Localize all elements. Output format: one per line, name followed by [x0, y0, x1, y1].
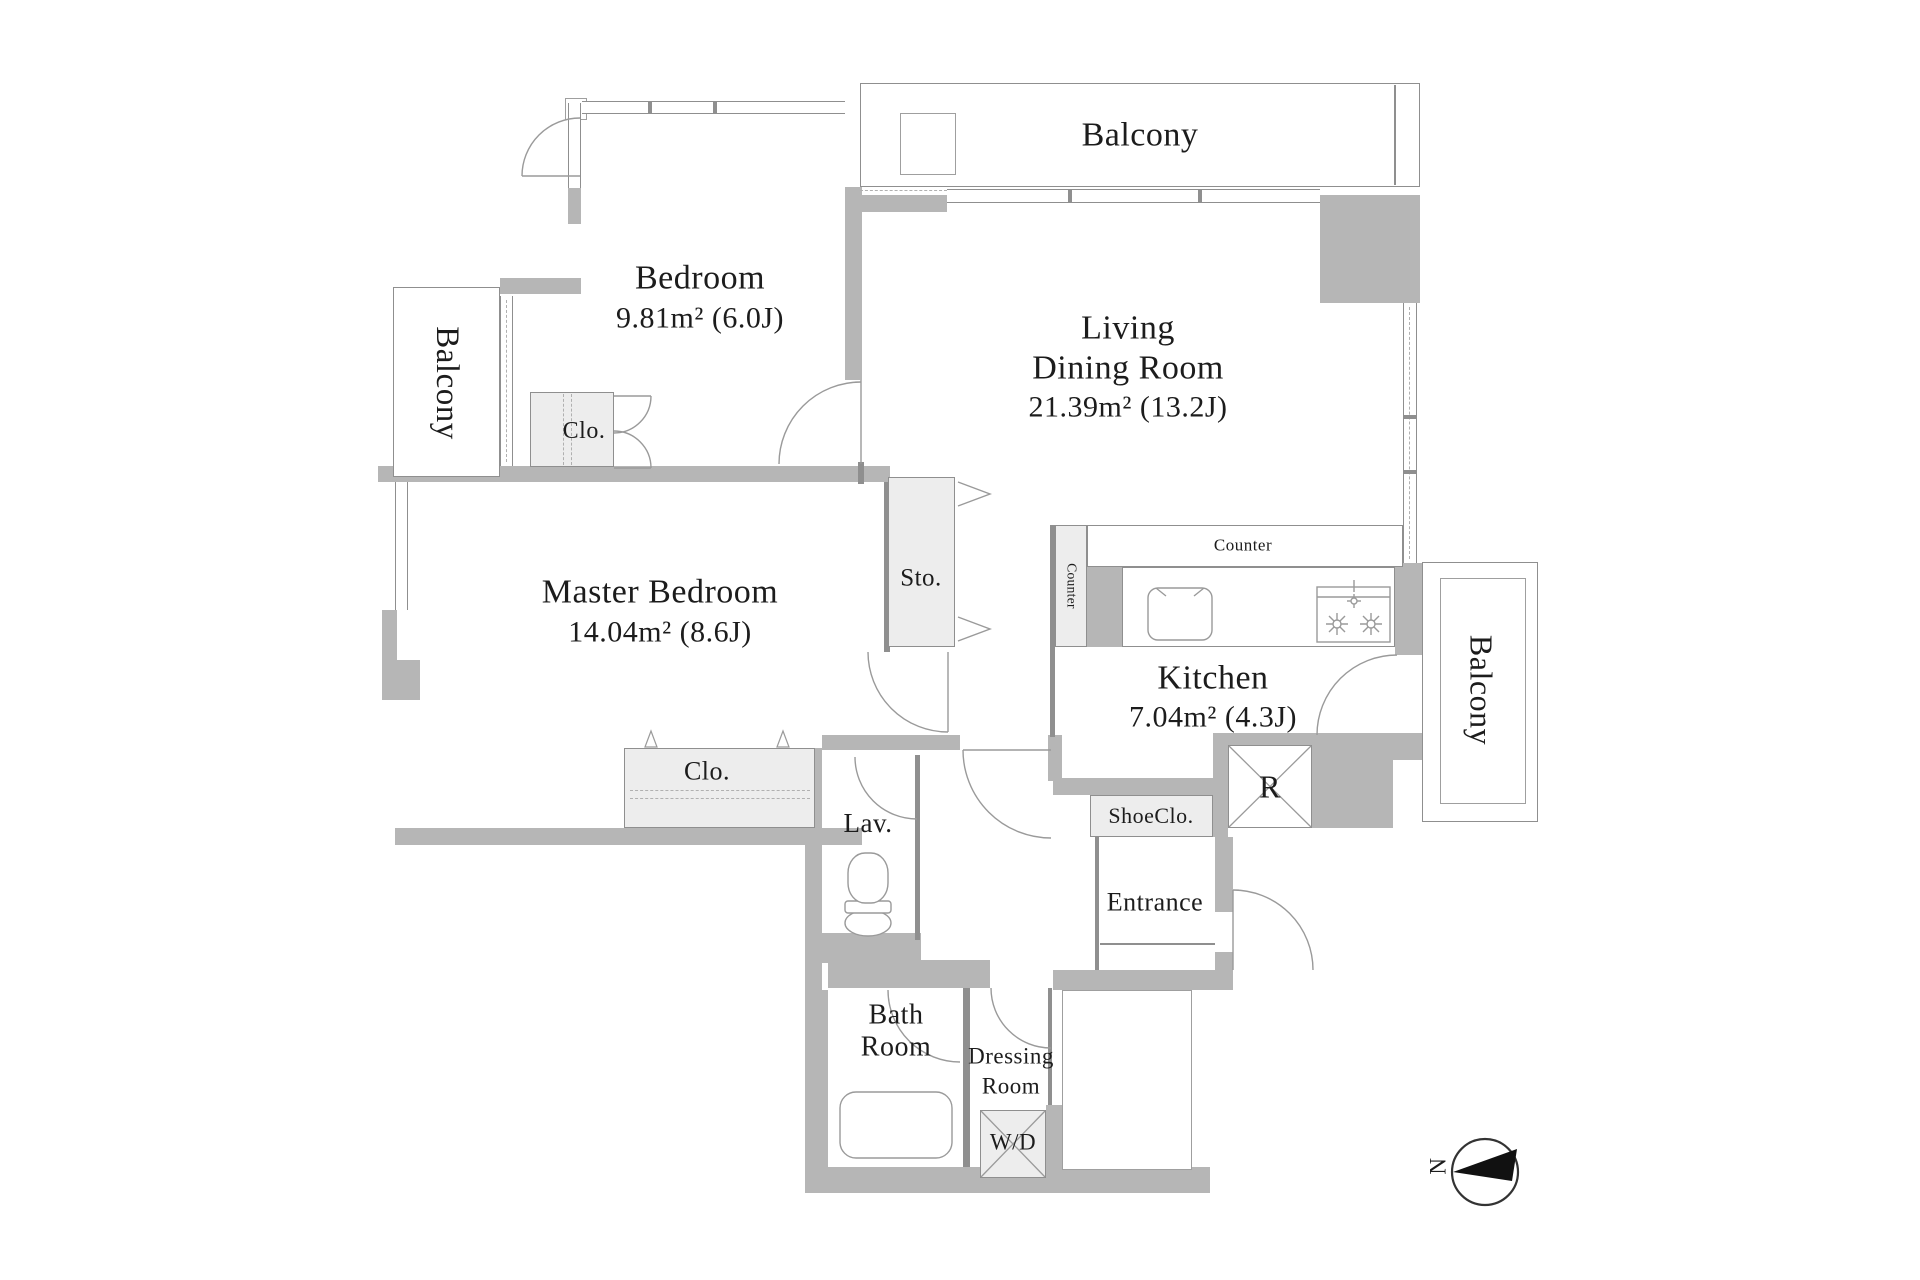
wall-segment: [1046, 1105, 1062, 1177]
door-arc: [1233, 890, 1313, 970]
bathtub-outline: [840, 1092, 952, 1158]
wall-segment: [862, 195, 947, 212]
bath-room-line1: Bath: [869, 1001, 924, 1032]
wall-segment: [500, 278, 581, 294]
wall-segment: [1213, 733, 1395, 745]
door-arc: [991, 988, 1051, 1048]
wall-segment: [1312, 745, 1393, 828]
lavatory-label: Lav.: [844, 809, 893, 839]
window-dash: [506, 300, 507, 462]
wall-segment: [396, 660, 420, 700]
partition-line: [963, 988, 970, 1167]
wall-segment: [822, 933, 921, 963]
shoe-closet-label: ShoeClo.: [1108, 804, 1193, 828]
master-closet-label: Clo.: [684, 758, 730, 787]
living-name-line2: Dining Room: [1032, 349, 1224, 386]
washer-dryer-label: W/D: [990, 1129, 1036, 1154]
window-tick: [1403, 470, 1417, 474]
floor-plan-canvas: Balcony Balcony Balcony Bedroom 9.81m² (…: [0, 0, 1920, 1280]
bifold-door-icon: [958, 482, 990, 506]
wall-segment: [828, 960, 990, 988]
window-band: [395, 482, 408, 610]
window-band: [947, 189, 1320, 203]
closet-pivot-icons: [645, 731, 789, 747]
compass-icon: [1452, 1139, 1518, 1205]
door-arc: [1317, 655, 1397, 735]
balcony-right-label: Balcony: [1463, 635, 1498, 745]
entrance-step-line: [1100, 943, 1215, 945]
bedroom-name: Bedroom: [635, 259, 765, 296]
refrigerator-label: R: [1259, 769, 1281, 804]
entrance-label: Entrance: [1107, 889, 1203, 918]
wall-segment: [1053, 970, 1233, 990]
counter-side-label: Counter: [1064, 563, 1079, 609]
bath-room-line2: Room: [861, 1033, 931, 1064]
door-arc: [868, 652, 948, 732]
partition-line: [915, 755, 920, 940]
window-tick: [648, 101, 652, 114]
kitchen-area: 7.04m² (4.3J): [1129, 701, 1297, 734]
pivot-icon: [645, 731, 657, 747]
balcony-inner-line: [1394, 85, 1396, 185]
wall-segment: [1087, 565, 1122, 647]
bedroom-closet-label: Clo.: [563, 418, 606, 444]
bedroom-area: 9.81m² (6.0J): [616, 302, 784, 335]
wall-segment: [382, 610, 397, 700]
window-dash: [1409, 307, 1410, 559]
dressing-room-line1: Dressing: [968, 1043, 1054, 1068]
living-area: 21.39m² (13.2J): [1029, 391, 1228, 424]
closet-rail-line: [630, 790, 810, 791]
dressing-room-line2: Room: [982, 1073, 1040, 1098]
balcony-top-label: Balcony: [1082, 116, 1199, 153]
wall-segment: [1215, 952, 1233, 970]
wall-segment: [1395, 563, 1422, 655]
storage-label: Sto.: [900, 564, 942, 592]
wall-segment: [1213, 745, 1228, 837]
wall-segment: [395, 828, 862, 845]
wall-segment: [1393, 733, 1422, 760]
wall-segment: [845, 187, 862, 380]
living-name-line1: Living: [1081, 309, 1175, 346]
balcony-top-box: [900, 113, 956, 175]
bifold-door-icon: [958, 617, 990, 641]
window-band: [1403, 303, 1417, 563]
bathtub-icon: [840, 1092, 952, 1158]
partition-line: [1095, 837, 1099, 970]
wall-segment: [805, 990, 828, 1167]
wall-segment: [1215, 837, 1233, 912]
closet-door-arc: [614, 396, 651, 433]
toilet-icon: [845, 853, 891, 936]
window-band: [568, 103, 581, 188]
toilet-tank: [845, 901, 891, 913]
wall-segment: [1053, 778, 1217, 795]
kitchen-name: Kitchen: [1157, 659, 1268, 696]
window-dash: [860, 190, 947, 191]
compass-circle: [1452, 1139, 1518, 1205]
window-tick: [713, 101, 717, 114]
balcony-left-label: Balcony: [429, 326, 465, 439]
wall-segment: [822, 735, 960, 750]
kitchen-worktop: [1122, 567, 1395, 647]
partition-line: [858, 462, 864, 484]
door-arc: [779, 382, 861, 464]
master-bedroom-name: Master Bedroom: [542, 573, 778, 610]
compass-north-label: N: [1425, 1157, 1450, 1174]
adjacent-area-outline: [1062, 990, 1192, 1170]
closet-rail-line: [630, 798, 810, 799]
wall-segment: [568, 188, 581, 224]
closet-door-arc: [614, 431, 651, 468]
compass-needle: [1453, 1149, 1517, 1181]
pivot-icon: [777, 731, 789, 747]
storage-cabinet: [888, 477, 955, 647]
window-tick: [1068, 189, 1072, 203]
window-tick: [1198, 189, 1202, 203]
window-tick: [1403, 415, 1417, 419]
toilet-bowl: [848, 853, 888, 903]
wall-pillar: [1320, 195, 1420, 303]
door-arc: [963, 750, 1051, 838]
wall-segment: [1048, 735, 1062, 781]
counter-front-label: Counter: [1214, 537, 1272, 556]
master-bedroom-area: 14.04m² (8.6J): [568, 616, 751, 649]
